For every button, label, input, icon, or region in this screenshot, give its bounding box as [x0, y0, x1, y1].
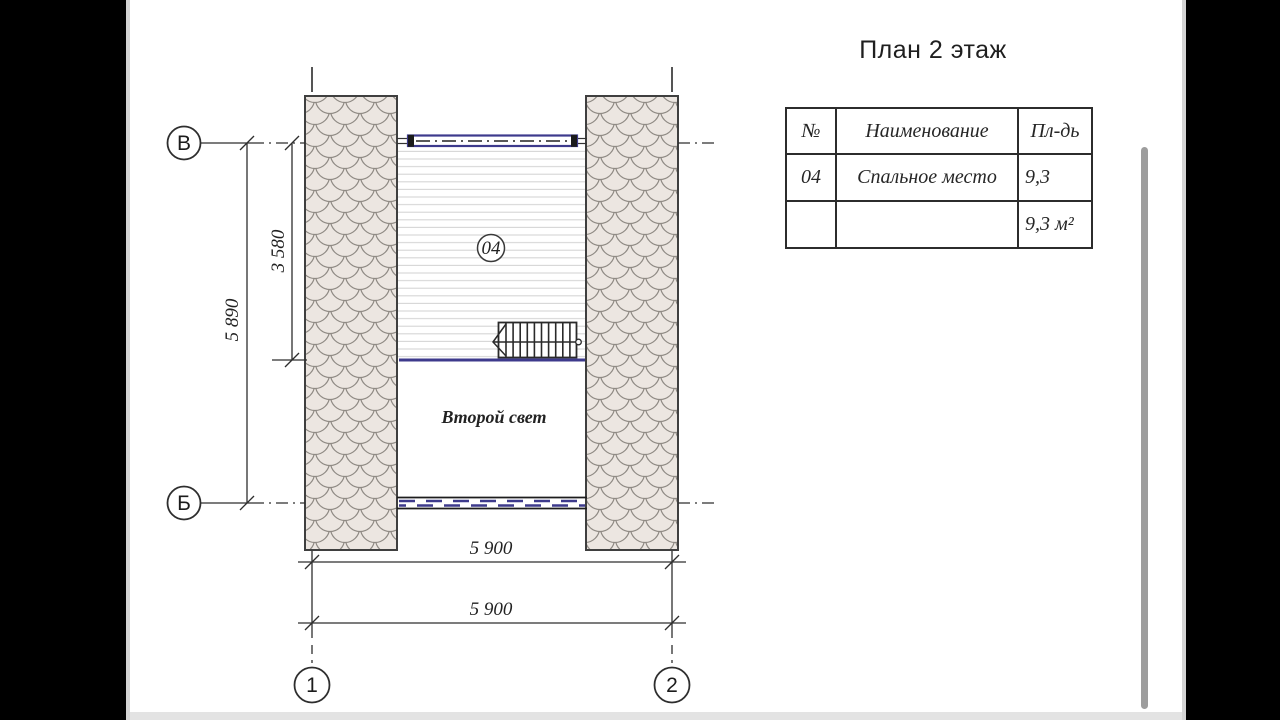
second-light-label: Второй свет: [440, 407, 546, 427]
floor-plan-drawing: В Б 5 890 3 580 04: [0, 0, 1280, 720]
right-wall: [586, 96, 678, 550]
window-bottom: [397, 498, 587, 509]
axis-label-2: 2: [666, 674, 678, 697]
stairs: [493, 323, 581, 358]
scrollbar-thumb[interactable]: [1141, 147, 1148, 709]
axis-label-b: Б: [177, 492, 191, 515]
top-axis-stubs: [312, 67, 672, 92]
left-wall: [305, 96, 397, 550]
handrail-end: [576, 339, 582, 345]
window-top: [397, 135, 587, 147]
window-jamb: [408, 135, 414, 147]
dim-label-5890: 5 890: [222, 298, 243, 341]
axis-label-v: В: [177, 132, 191, 155]
window-jamb: [571, 135, 577, 147]
dim-label-5900-outer: 5 900: [470, 599, 513, 620]
dim-label-5900-inner: 5 900: [470, 538, 513, 559]
axis-label-1: 1: [306, 674, 318, 697]
dim-label-3580: 3 580: [268, 229, 289, 273]
room-tag-label: 04: [482, 238, 502, 259]
